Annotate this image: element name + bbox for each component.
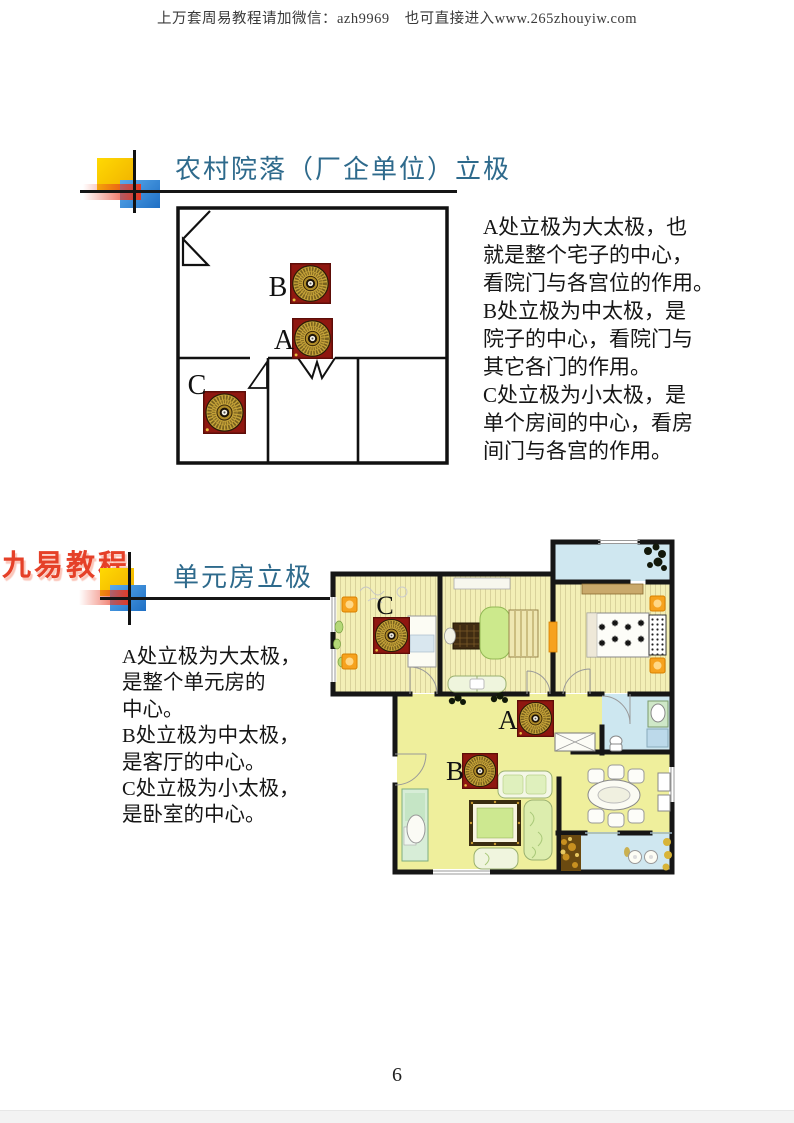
text-line: A处立极为大太极， [122, 644, 332, 670]
luopan-compass-b-icon [290, 263, 331, 304]
decoration-cross-2 [85, 552, 170, 630]
text-line: 就是整个宅子的中心， [483, 241, 794, 269]
footer-bar [0, 1110, 794, 1123]
text-line: A处立极为大太极，也 [483, 213, 794, 241]
courtyard-diagram: B A C [170, 200, 455, 470]
section1-title: 农村院落（厂企单位）立极 [175, 149, 511, 186]
text-line: 看院门与各宫位的作用。 [483, 269, 794, 297]
text-line: 是客厅的中心。 [122, 750, 332, 776]
section1-description: A处立极为大太极，也 就是整个宅子的中心， 看院门与各宫位的作用。 B处立极为中… [483, 213, 794, 465]
courtyard-label-a: A [274, 325, 295, 356]
floorplan-label-b: B [446, 756, 464, 786]
header-promo-text: 上万套周易教程请加微信：azh9969 也可直接进入www.265zhouyiw… [0, 7, 794, 28]
luopan-compass-b-icon [462, 753, 498, 789]
section1-title-rule [80, 190, 457, 193]
text-line: C处立极为小太极， [122, 776, 332, 802]
courtyard-label-c: C [188, 370, 207, 401]
floorplan-label-c: C [376, 591, 393, 620]
section2-title-rule [100, 597, 337, 600]
text-line: 中心。 [122, 697, 332, 723]
text-line: B处立极为中太极， [122, 723, 332, 749]
luopan-compass-c-icon [203, 391, 246, 434]
text-line: 其它各门的作用。 [483, 353, 794, 381]
floorplan-image: C A B [330, 537, 680, 877]
text-line: B处立极为中太极，是 [483, 297, 794, 325]
text-line: 院子的中心，看院门与 [483, 325, 794, 353]
luopan-compass-c-icon [373, 617, 410, 654]
luopan-compass-a-icon [517, 700, 554, 737]
floorplan-label-a: A [498, 705, 518, 735]
deco-vertical-line [128, 552, 131, 625]
luopan-compass-a-icon [292, 318, 333, 359]
deco-vertical-line [133, 150, 136, 213]
document-page: 上万套周易教程请加微信：azh9969 也可直接进入www.265zhouyiw… [0, 0, 794, 1123]
text-line: 是卧室的中心。 [122, 802, 332, 828]
text-line: C处立极为小太极，是 [483, 381, 794, 409]
section2-title: 单元房立极 [173, 557, 313, 594]
section2-description: A处立极为大太极， 是整个单元房的 中心。 B处立极为中太极， 是客厅的中心。 … [122, 644, 332, 829]
text-line: 间门与各宫的作用。 [483, 437, 794, 465]
text-line: 单个房间的中心，看房 [483, 409, 794, 437]
courtyard-label-b: B [269, 272, 288, 303]
page-number: 6 [0, 1064, 794, 1087]
text-line: 是整个单元房的 [122, 670, 332, 696]
decoration-cross-1 [85, 150, 170, 228]
